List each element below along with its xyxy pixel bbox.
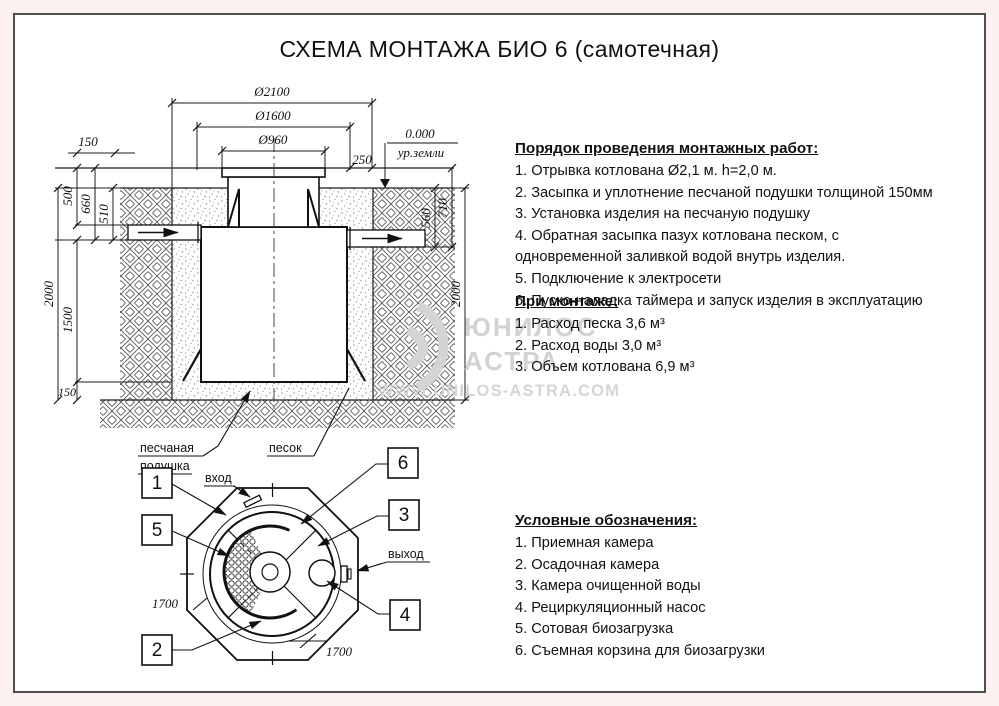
callout-6: 6 [398, 453, 409, 474]
installation-item: 1. Расход песка 3,6 м³ [515, 314, 947, 336]
callout-2: 2 [152, 640, 163, 661]
installation-item: 2. Расход воды 3,0 м³ [515, 336, 947, 358]
callout-4: 4 [400, 605, 411, 626]
cross-section-drawing: Ø2100 Ø1600 Ø960 250 150 0.000 ур.земли … [40, 78, 510, 483]
outlet-pipe [347, 227, 425, 250]
level-arrow [380, 179, 390, 188]
instructions-heading: Порядок проведения монтажных работ: [515, 140, 947, 157]
leader-outlet [357, 562, 387, 571]
dim-d2000-right: 2000 [448, 281, 463, 308]
dim-d1500: 1500 [60, 307, 75, 334]
legend-item: 5. Сотовая биозагрузка [515, 619, 947, 641]
page-title: СХЕМА МОНТАЖА БИО 6 (самотечная) [0, 36, 999, 63]
tank-neck [228, 177, 319, 227]
legend-item: 6. Съемная корзина для биозагрузки [515, 641, 947, 663]
dim-d510: 510 [96, 204, 111, 224]
legend-item: 3. Камера очищенной воды [515, 576, 947, 598]
dim-d2000-left: 2000 [41, 281, 56, 308]
tank-lid [222, 168, 325, 177]
dim-d250: 250 [352, 152, 372, 167]
recirculation-pump [309, 560, 335, 586]
installation-block: При монтаже: 1. Расход песка 3,6 м³ 2. Р… [515, 293, 947, 379]
dim-d500: 500 [60, 186, 75, 206]
dim-d1600: Ø1600 [254, 108, 291, 123]
legend-item: 2. Осадочная камера [515, 555, 947, 577]
dim-d150-top: 150 [78, 134, 98, 149]
legend-item: 1. Приемная камера [515, 533, 947, 555]
dim-d2100: Ø2100 [253, 84, 290, 99]
instruction-item: 4. Обратная засыпка пазух котлована песк… [515, 226, 947, 269]
dim-d150-bottom: 150 [58, 385, 76, 399]
sand-cushion [172, 382, 373, 400]
installation-item: 3. Объем котлована 6,9 м³ [515, 357, 947, 379]
dim-d710: 710 [435, 198, 450, 218]
callout-3: 3 [399, 505, 410, 526]
dim-d660: 660 [78, 194, 93, 214]
dim-level: 0.000 [405, 126, 435, 141]
instruction-item: 3. Установка изделия на песчаную подушку [515, 204, 947, 226]
dim-ground-level: ур.земли [396, 145, 445, 160]
callout-1: 1 [152, 473, 163, 494]
dim-1700-bottom: 1700 [326, 644, 353, 659]
center-pipe [262, 564, 278, 580]
legend-heading: Условные обозначения: [515, 512, 947, 529]
legend-block: Условные обозначения: 1. Приемная камера… [515, 512, 947, 663]
label-inlet: вход [205, 471, 232, 485]
callout-5: 5 [152, 520, 163, 541]
label-outlet: выход [388, 547, 424, 561]
dim-d560: 560 [418, 208, 433, 228]
instruction-item: 2. Засыпка и уплотнение песчаной подушки… [515, 183, 947, 205]
instruction-item: 1. Отрывка котлована Ø2,1 м. h=2,0 м. [515, 161, 947, 183]
leader-1 [172, 484, 226, 515]
legend-item: 4. Рециркуляционный насос [515, 598, 947, 620]
instruction-item: 5. Подключение к электросети [515, 269, 947, 291]
installation-heading: При монтаже: [515, 293, 947, 310]
dim-d960: Ø960 [258, 132, 288, 147]
instructions-block: Порядок проведения монтажных работ: 1. О… [515, 140, 947, 312]
dim-1700-left: 1700 [152, 596, 179, 611]
top-view-drawing: 1 5 2 6 3 4 вход выход 1700 1700 [130, 440, 460, 690]
inlet-pipe [128, 222, 201, 243]
